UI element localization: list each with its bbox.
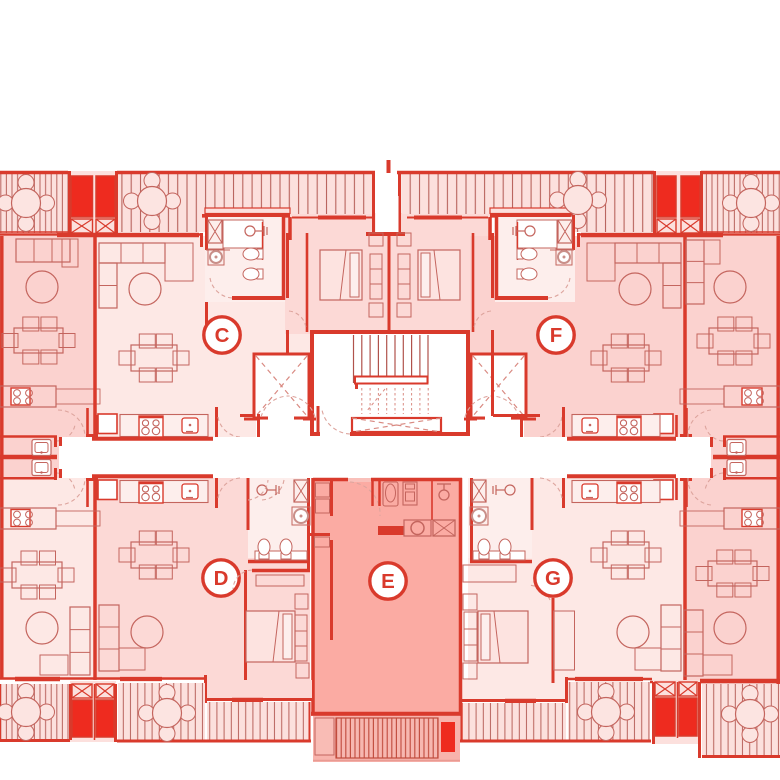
svg-text:E: E [381,570,395,593]
svg-text:F: F [550,324,563,347]
svg-text:G: G [545,567,561,590]
svg-text:C: C [215,324,230,347]
svg-text:D: D [214,567,229,590]
